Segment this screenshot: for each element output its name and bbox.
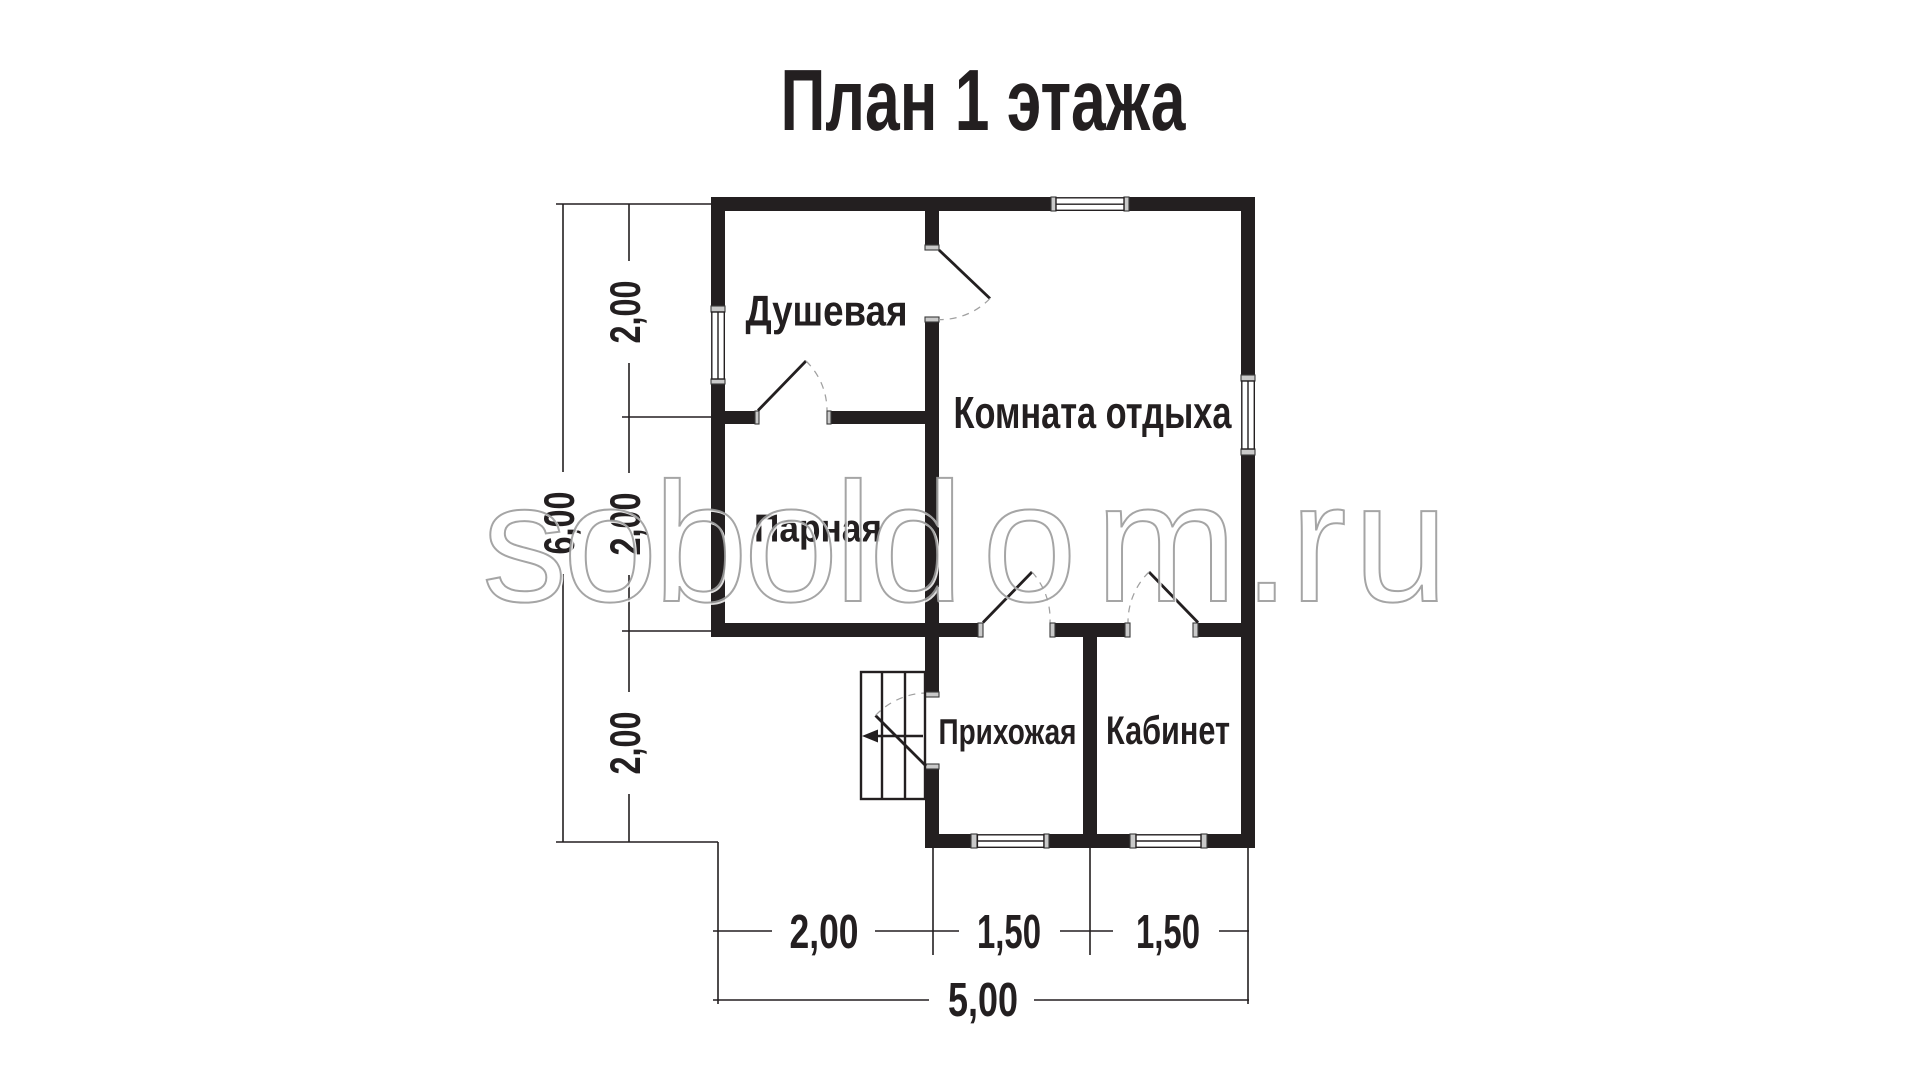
svg-text:soboldom.ru: soboldom.ru [482, 448, 1448, 638]
svg-text:1,50: 1,50 [1136, 906, 1200, 959]
svg-text:Прихожая: Прихожая [939, 711, 1077, 752]
svg-text:Душевая: Душевая [746, 288, 908, 336]
svg-text:Комната отдыха: Комната отдыха [954, 387, 1233, 438]
svg-text:5,00: 5,00 [948, 974, 1018, 1027]
svg-text:Кабинет: Кабинет [1106, 709, 1230, 753]
svg-text:2,00: 2,00 [602, 712, 650, 775]
svg-text:План 1 этажа: План 1 этажа [781, 52, 1186, 149]
svg-text:2,00: 2,00 [602, 281, 650, 344]
svg-text:2,00: 2,00 [790, 906, 859, 959]
svg-text:1,50: 1,50 [977, 906, 1041, 959]
